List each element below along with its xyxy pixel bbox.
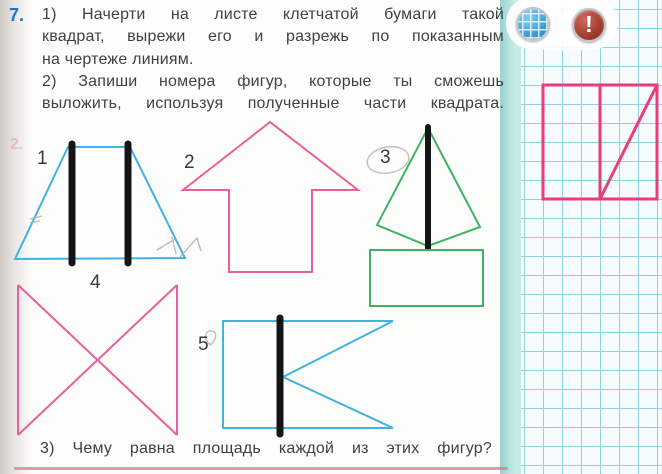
question-part3: 3) Чему равна площадь каждой из этих фиг… <box>40 440 492 458</box>
page-bottom-rule <box>14 467 508 470</box>
figure-3-kite <box>377 128 480 246</box>
instruction-text: 1) Начерти на листе клетчатой бумаги так… <box>42 4 504 115</box>
figure-5-label: 5 <box>198 334 209 356</box>
task-number: 7. <box>9 5 24 26</box>
squared-paper-background <box>521 0 662 474</box>
alert-icon: ! <box>572 8 606 42</box>
figure-5-flag <box>223 321 393 428</box>
instruction-line-3: на чертеже линиям. <box>42 49 504 71</box>
figure-2-arrow <box>183 122 358 272</box>
show-through-number: 2. <box>10 136 23 154</box>
figure-4-bowtie <box>18 285 177 435</box>
figure-3-rectangle <box>370 250 483 306</box>
figure-1-label: 1 <box>37 148 48 170</box>
instruction-line-5: выложить, используя полученные части ква… <box>42 93 504 115</box>
instruction-line-4: 2) Запиши номера фигур, которые ты сможе… <box>42 71 504 93</box>
instruction-line-2: квадрат, вырежи его и разрежь по показан… <box>42 26 504 48</box>
margin-panel: ! <box>500 0 662 474</box>
page-gutter-shadow <box>0 0 32 474</box>
figure-2-label: 2 <box>184 152 195 174</box>
figure-3-label: 3 <box>380 147 391 169</box>
figure-4-label: 4 <box>90 272 101 294</box>
grid-icon <box>516 7 550 41</box>
instruction-line-1: 1) Начерти на листе клетчатой бумаги так… <box>42 4 504 26</box>
exclamation-glyph: ! <box>585 13 593 36</box>
pencil-scribbles <box>30 144 411 345</box>
